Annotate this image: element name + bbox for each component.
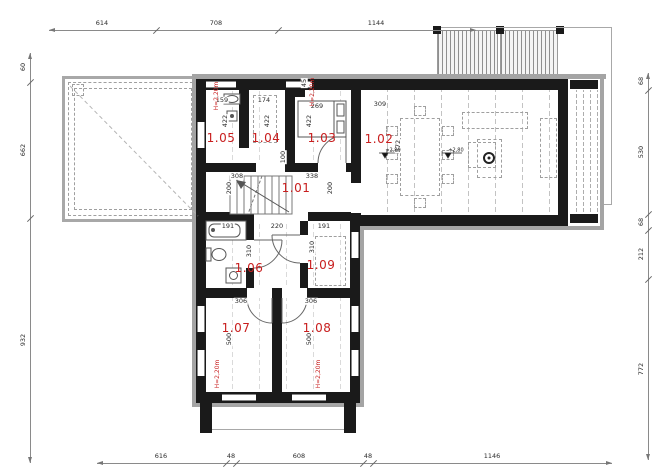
toilet (206, 248, 226, 261)
floor-plan-canvas: 1.011.021.031.041.051.061.071.081.091591… (0, 0, 665, 474)
door-swings (247, 135, 346, 323)
vector-layer (0, 0, 665, 474)
bed (298, 101, 346, 137)
washbasin (224, 94, 240, 121)
level-marker (379, 153, 462, 158)
sink (226, 268, 241, 283)
bathtub (206, 221, 246, 240)
stove-icon (484, 153, 494, 163)
garage-diagonal (70, 86, 198, 216)
